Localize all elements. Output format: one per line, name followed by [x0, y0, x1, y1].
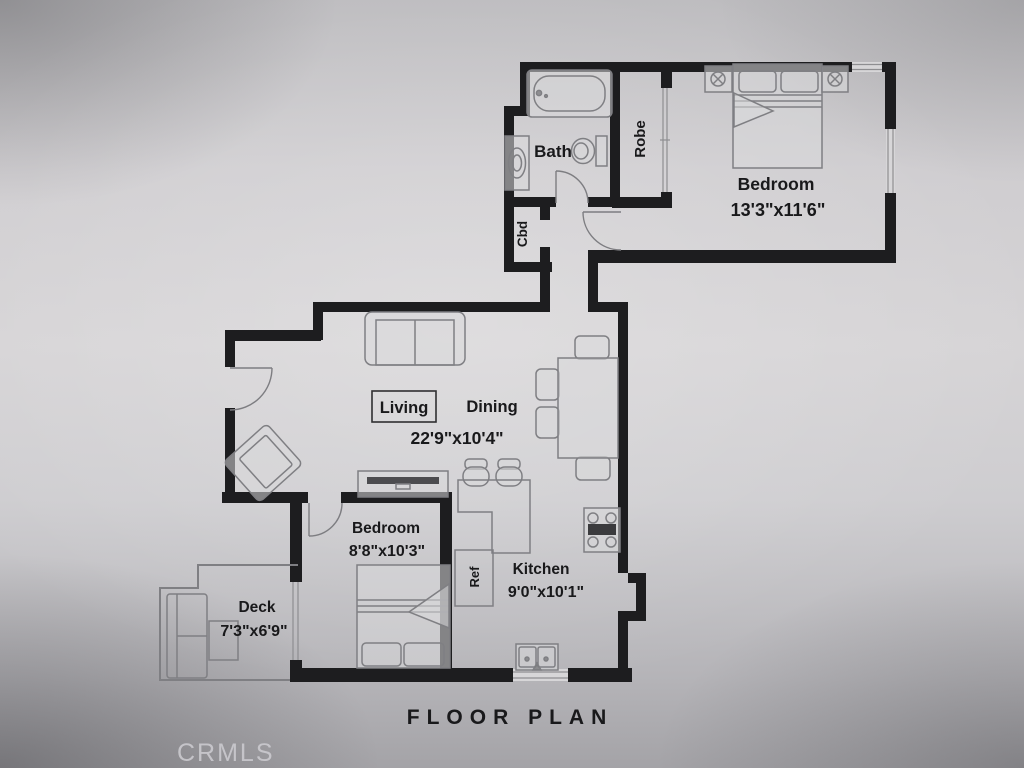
wall-bottom-right [568, 668, 632, 682]
robe-label: Robe [632, 120, 649, 158]
kitchen-label: Kitchen [513, 561, 570, 578]
wall-robe-right-bottom [661, 192, 672, 208]
bar-stool-seat [496, 467, 522, 486]
main-bedroom-label: Bedroom [738, 174, 815, 194]
second-bedroom-dims: 8'8"x10'3" [349, 543, 425, 560]
bathtub-faucet-dot [545, 95, 548, 98]
dining-chair [575, 336, 609, 359]
dining-label: Dining [466, 398, 517, 416]
armchair [223, 424, 302, 503]
wall-living-topleft [225, 330, 321, 341]
wall-bath-bottom-left [504, 197, 556, 207]
kitchen-sink-drain [544, 657, 548, 661]
entry-door-arc [230, 368, 272, 410]
window-bedroom-right [886, 129, 895, 193]
floor-plan-photo: Bath Robe Cbd Bedroom 13'3"x11'6" Living… [0, 0, 1024, 768]
toilet-tank [596, 136, 607, 166]
floor-plan-drawing: Bath Robe Cbd Bedroom 13'3"x11'6" Living… [0, 0, 1024, 768]
bar-stool-seat [463, 467, 489, 486]
second-bedroom-door-arc [309, 503, 342, 536]
watermark: CRMLS [177, 739, 275, 767]
main-bedroom-dims: 13'3"x11'6" [731, 200, 826, 220]
living-label: Living [380, 399, 429, 417]
kitchen-counter [458, 480, 530, 553]
window-bedroom-top [852, 62, 882, 72]
wall-right-lower [885, 193, 896, 253]
dining-chair [536, 407, 559, 438]
kitchen-sink-drain [525, 657, 529, 661]
wall-corridor-right [588, 250, 598, 306]
wall-right-upper [885, 62, 896, 129]
dining-table [558, 358, 618, 458]
wall-notch-bottom [628, 611, 646, 621]
dining-chair [536, 369, 559, 400]
wall-left-above-door [225, 330, 235, 367]
main-bedroom-door-arc [583, 212, 621, 250]
cbd-label: Cbd [515, 221, 530, 247]
living-dining-dims: 22'9"x10'4" [410, 428, 503, 448]
wall-living-top [313, 302, 547, 312]
window-kitchen [513, 669, 568, 681]
wall-bedroom2-left-upper [290, 492, 302, 582]
dining-chair [576, 457, 610, 480]
wall-bottom-left [290, 668, 513, 682]
deck-label: Deck [238, 599, 275, 616]
bath-label: Bath [534, 142, 572, 161]
tv-screen [367, 477, 439, 484]
deck-dims: 7'3"x6'9" [220, 623, 287, 640]
bath-door-arc [556, 171, 588, 203]
bathtub-faucet [536, 90, 541, 95]
wall-robe-right-top [661, 62, 672, 88]
kitchen-dims: 9'0"x10'1" [508, 584, 584, 601]
ref-label: Ref [467, 566, 482, 588]
toilet-bowl [572, 139, 595, 164]
second-bedroom-label: Bedroom [352, 520, 420, 537]
stove-panel [588, 524, 616, 535]
wall-upper-section-bottom [588, 250, 896, 263]
page-title: FLOOR PLAN [407, 706, 614, 729]
wall-cbd-right-stub [540, 206, 550, 220]
